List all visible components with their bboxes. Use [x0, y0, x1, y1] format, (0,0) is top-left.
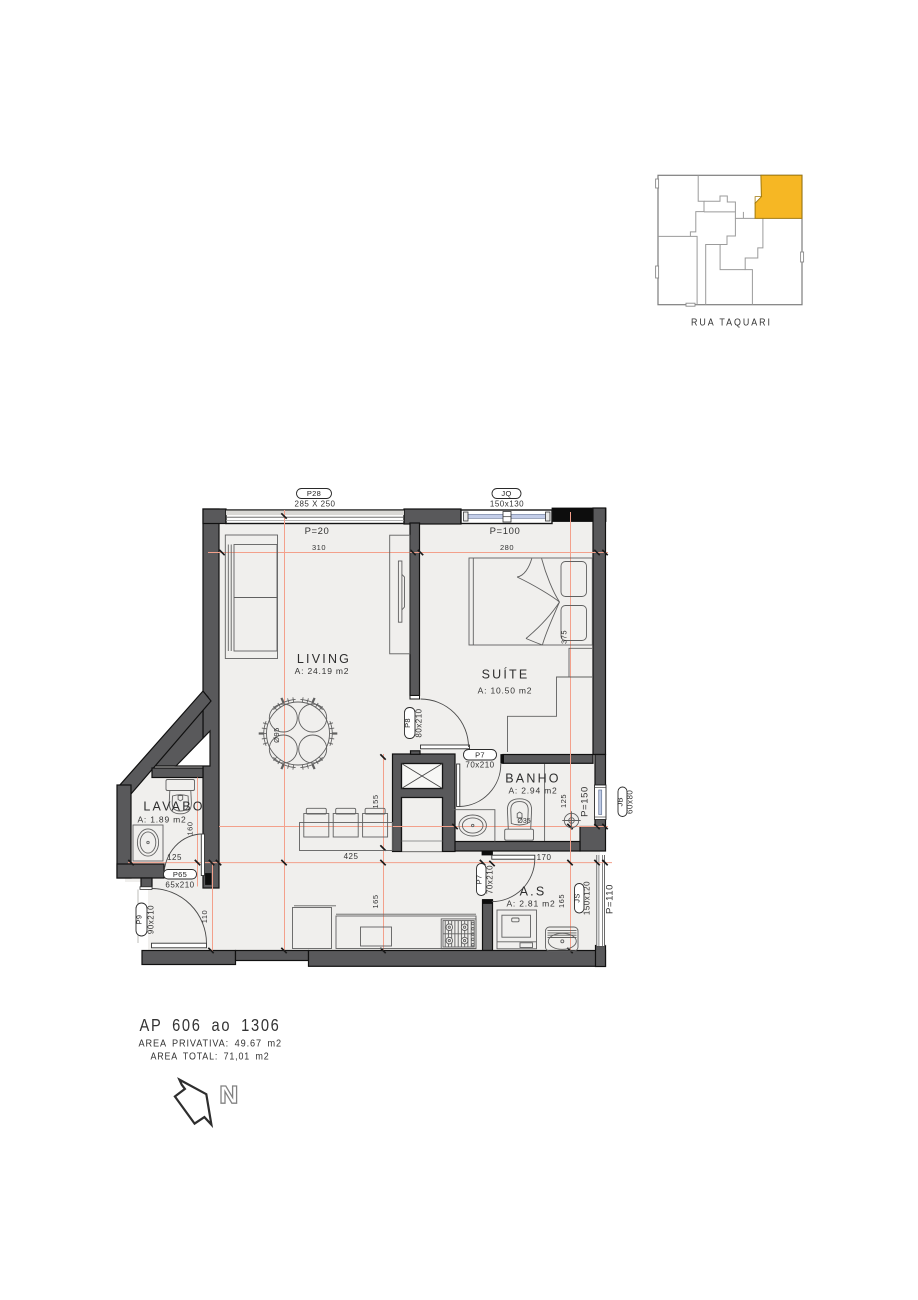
svg-text:155: 155: [371, 794, 380, 808]
svg-text:A: 2.81 m2: A: 2.81 m2: [506, 899, 555, 909]
svg-text:P=150: P=150: [580, 786, 591, 817]
svg-text:SUÍTE: SUÍTE: [482, 667, 530, 682]
svg-text:285 X 250: 285 X 250: [295, 500, 336, 509]
svg-text:AREA TOTAL: 71,01 m2: AREA TOTAL: 71,01 m2: [151, 1051, 270, 1063]
svg-text:LIVING: LIVING: [297, 652, 351, 666]
svg-text:AREA PRIVATIVA: 49.67 m2: AREA PRIVATIVA: 49.67 m2: [139, 1038, 283, 1050]
svg-text:Ø95: Ø95: [272, 727, 281, 743]
svg-text:LAVABO: LAVABO: [143, 800, 204, 814]
svg-text:Ø35: Ø35: [517, 818, 530, 825]
svg-text:BANHO: BANHO: [505, 772, 560, 786]
svg-text:80x210: 80x210: [415, 708, 424, 737]
svg-text:P=110: P=110: [605, 884, 616, 914]
svg-text:110: 110: [200, 910, 209, 923]
svg-text:165: 165: [371, 894, 380, 908]
svg-text:425: 425: [344, 852, 359, 861]
svg-text:P8: P8: [403, 718, 412, 728]
svg-text:P7: P7: [474, 875, 483, 885]
svg-text:A.S: A.S: [520, 885, 547, 899]
svg-text:310: 310: [312, 543, 326, 552]
svg-text:AP 606 ao 1306: AP 606 ao 1306: [140, 1015, 281, 1035]
svg-text:P7: P7: [475, 751, 485, 760]
svg-text:A: 24.19 m2: A: 24.19 m2: [295, 666, 350, 676]
svg-text:170: 170: [537, 853, 552, 862]
svg-text:A: 2.94 m2: A: 2.94 m2: [508, 786, 557, 796]
svg-text:P=100: P=100: [490, 526, 521, 537]
svg-text:RUA TAQUARI: RUA TAQUARI: [691, 318, 772, 329]
svg-text:125: 125: [167, 853, 182, 862]
svg-text:P9: P9: [135, 915, 144, 925]
svg-text:70x210: 70x210: [465, 761, 494, 770]
svg-text:P=20: P=20: [305, 526, 330, 537]
svg-text:65x210: 65x210: [165, 881, 194, 890]
svg-text:A: 10.50 m2: A: 10.50 m2: [478, 686, 533, 696]
svg-text:P28: P28: [307, 489, 321, 498]
svg-text:280: 280: [500, 543, 514, 552]
svg-text:JB: JB: [616, 797, 625, 806]
svg-text:150x130: 150x130: [490, 500, 524, 509]
svg-text:P65: P65: [173, 870, 187, 879]
svg-text:160: 160: [186, 821, 195, 835]
svg-text:125: 125: [559, 794, 568, 808]
svg-text:60x80: 60x80: [626, 790, 635, 814]
svg-text:JQ: JQ: [501, 489, 511, 498]
svg-text:A: 1.89 m2: A: 1.89 m2: [137, 815, 186, 825]
svg-text:70x210: 70x210: [486, 865, 495, 894]
svg-text:90x210: 90x210: [147, 905, 156, 934]
svg-text:150x120: 150x120: [583, 881, 592, 915]
svg-text:165: 165: [557, 894, 566, 908]
svg-text:JS: JS: [572, 893, 581, 902]
svg-text:375: 375: [560, 630, 569, 644]
